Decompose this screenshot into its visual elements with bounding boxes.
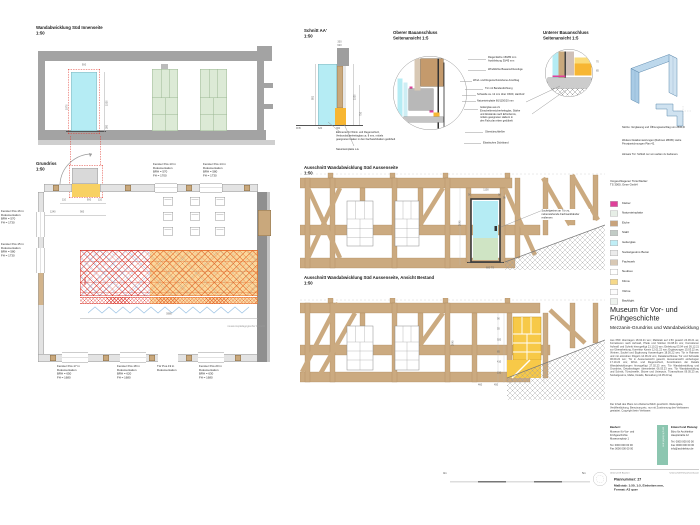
- dim-label: 380: [106, 125, 109, 129]
- legend-label: Fachwerk: [622, 261, 635, 264]
- dim-label: 1530: [354, 94, 357, 100]
- legend-swatch-neubau: [610, 269, 618, 275]
- scalebar-segment: [450, 481, 478, 483]
- dim-label: 90: [498, 194, 501, 197]
- dim-line: [104, 72, 105, 132]
- callout-leader: [464, 109, 478, 110]
- door-frame-3d-sketch: [630, 53, 689, 106]
- detail-eiche-riegel: [421, 59, 444, 87]
- callout-leader: [462, 95, 476, 96]
- legend-swatch-sockel: [610, 250, 618, 256]
- dim-label: 600 TS: [475, 267, 505, 270]
- legend-swatch-eiche: [610, 221, 618, 227]
- detail-circle-oben: [393, 56, 467, 130]
- detail-steel: [409, 89, 434, 111]
- note-glass: Elemente für Wind- und Regenschutz, Verb…: [336, 131, 426, 141]
- architect-address: Büro für Architektur Hauptstraße 12 Tel.…: [671, 431, 700, 451]
- plan-subtitle: Mezzanin-Grundriss und Wandabwicklung: [610, 325, 699, 331]
- klima-overlay: [150, 297, 258, 304]
- dim-line: [359, 85, 360, 125]
- lattice-window: [395, 201, 419, 246]
- callout-leader: [464, 144, 481, 145]
- callout-dichtband: Elastisches Dichtband: [483, 142, 509, 145]
- view-scale-schnitt: 1:50: [304, 34, 313, 39]
- copyright-note: Der Inhalt des Plans ist urheberrechtlic…: [610, 403, 699, 413]
- detail-klima: [575, 64, 592, 76]
- dim-label: 2045: [459, 220, 462, 226]
- client-address: Museum für Vor- und Frühgeschichte Museu…: [610, 431, 654, 451]
- note-tuer: Hinweis Tür: Schloß nur von außen zu bed…: [622, 153, 698, 156]
- scalebar-segment: [478, 481, 506, 483]
- klima-overlay: [150, 250, 258, 296]
- wall-tab: [264, 83, 273, 88]
- chair: [190, 197, 200, 206]
- callout-leader-lines: [520, 84, 570, 119]
- annotation-fenster-15: Fenster Pos.15 in Dokumentation BRH = 58…: [1, 243, 24, 258]
- scalebar-min-label: 0m: [443, 472, 447, 475]
- window-14-plan: [200, 183, 222, 193]
- legend-label: Neubau: [622, 270, 633, 273]
- dim-label: 1240: [50, 211, 56, 214]
- legend-label: Sockelgesims Beton: [622, 251, 649, 254]
- legend-label: Isolierglas: [622, 241, 636, 244]
- legend-label: Natursteinplatte: [622, 212, 643, 215]
- dim-label: 900: [80, 211, 84, 214]
- format-note: Maßstab: 1:50, 1:5, Einheiten mm, Format…: [614, 484, 699, 492]
- callout-tuerschliesser: Obentürschließer: [485, 131, 505, 134]
- door-19-opening: [158, 353, 178, 363]
- section-wall-above: [337, 48, 349, 66]
- timber-post-plan: [125, 185, 131, 191]
- dim-label: 5980: [80, 313, 258, 316]
- signature-right: Unterschrift Entwurfsverfasser: [658, 472, 699, 475]
- dim-line: [80, 318, 258, 319]
- lattice-window: [347, 201, 373, 246]
- legend-swatch-isolierglas: [610, 240, 618, 246]
- dim-label: 90: [497, 318, 500, 321]
- titleblock-divider: [610, 469, 699, 470]
- plan-wall: [222, 184, 258, 192]
- vitrine-label: Vitrine: [84, 277, 87, 285]
- chair: [215, 212, 225, 221]
- timber-post-plan: [186, 185, 192, 191]
- dim-line: [44, 215, 106, 216]
- view-title-wand-innen: Wandabwicklung Süd Innenseite: [36, 25, 103, 30]
- window-16-plan: [36, 212, 45, 237]
- view-scale-aussen-bestand: 1:50: [304, 281, 313, 286]
- annotation-tuer-19: Tür Pos.19 in Dokumentation: [157, 365, 177, 373]
- annotation-fenster-17: Fenster Pos.17 in Dokumentation BRH = 65…: [57, 365, 80, 380]
- door-sill-line: [66, 131, 106, 132]
- callout-riegel: Riegel Eiche 150/80 mm Ausklinkung 30/45…: [488, 56, 516, 63]
- existing-door-elevation: [200, 69, 227, 131]
- detail-frame: [566, 52, 574, 76]
- window-17-plan: [62, 352, 88, 363]
- timber-post-plan: [149, 355, 155, 361]
- dim-label: 900: [78, 199, 100, 202]
- legend-swatch-naturstein: [610, 211, 618, 217]
- legend-swatch-fachwerk: [610, 260, 618, 266]
- dim-label: 900: [68, 64, 100, 67]
- callout-isolierglas: Isolierglas aus 2x Einscheibensicherheit…: [480, 106, 520, 123]
- window-18-plan: [120, 352, 146, 363]
- scalebar-segment: [506, 481, 534, 483]
- legend-label: Vitrine: [622, 290, 630, 293]
- project-title: Museum für Vor- und Frühgeschichte: [610, 306, 699, 323]
- view-scale-wand-innen: 1:50: [36, 31, 45, 36]
- legend-swatch-backlight: [610, 299, 618, 305]
- dim-label: 110: [62, 199, 66, 202]
- approval-stamp: [593, 472, 607, 486]
- dim-label: 920: [497, 339, 501, 342]
- paedagogik-note: museumspädagogischer Bereich: [170, 325, 265, 328]
- wall-elevation-left: [38, 51, 45, 140]
- window-13-plan: [155, 183, 177, 193]
- scalebar-segment: [534, 481, 562, 483]
- wall-elevation-head: [257, 46, 272, 61]
- detail-glass: [404, 83, 408, 117]
- timber-post-plan: [244, 185, 250, 191]
- scalebar-max-label: 5m: [582, 472, 586, 475]
- legend-label: Kleber: [622, 202, 631, 205]
- view-title-aussen-bestand: Ausschnitt Wandabwicklung Süd Aussenseit…: [304, 275, 434, 280]
- timber-post-plan: [50, 355, 56, 361]
- chair: [163, 227, 173, 236]
- callout-regenschutz: Wind- und Regenschutzebene Anschlag: [473, 79, 519, 82]
- door-mullion: [165, 98, 166, 131]
- dim-line: [315, 64, 316, 125]
- dim-line: [60, 203, 106, 204]
- wall-elevation-right: [257, 61, 264, 131]
- architect-logo: architekten: [657, 425, 668, 465]
- dim-label: 410: [497, 361, 501, 364]
- scalebar: [450, 481, 590, 483]
- chair: [163, 197, 173, 206]
- note-skizze: Skizze: Verglasung und Öffnungsanschlag …: [622, 126, 698, 129]
- annotation-fenster-14: Fenster Pos.14 in Dokumentation BRH = 58…: [203, 163, 226, 178]
- legend-label: Klima: [622, 280, 630, 283]
- view-subtitle-detail-unten: Seitenansicht 1:5: [543, 36, 578, 41]
- dim-label: 1100: [476, 189, 496, 192]
- legend-swatch-vitrine: [610, 289, 618, 295]
- callout-leader: [465, 89, 483, 90]
- legend-label: Backlight: [622, 300, 634, 303]
- door-mullion: [209, 70, 210, 98]
- new-door-highlight-outline: [68, 69, 100, 134]
- dim-label: 110: [98, 199, 102, 202]
- detail-glass-line: [444, 63, 445, 129]
- door-mullion: [161, 70, 162, 98]
- annotation-fenster-20: Fenster Pos.20 in Dokumentation BRH = 63…: [199, 365, 222, 380]
- callout-leader: [460, 81, 472, 82]
- view-scale-grundriss: 1:50: [36, 167, 45, 172]
- section-liner: [343, 66, 346, 108]
- door-mullion: [218, 70, 219, 98]
- dim-label: 70: [596, 61, 599, 64]
- annotation-fenster-16: Fenster Pos.16 in Dokumentation BRH = 57…: [1, 210, 24, 225]
- client-label: Bauherr:: [610, 426, 621, 429]
- legend-header: Vorgeschlagener Türschließer: TS 3000, G…: [610, 180, 698, 187]
- dim-label: 460: [478, 384, 482, 387]
- timber-post-plan: [235, 355, 241, 361]
- scalebar-segment: [562, 481, 590, 483]
- projection-line: [100, 136, 101, 165]
- dim-label: 450: [494, 384, 498, 387]
- door-opening-klima: [72, 184, 100, 197]
- timber-post-plan: [186, 355, 192, 361]
- dim-label: 85: [596, 70, 599, 73]
- note-stone: Natursteinplatte o.ä.: [336, 148, 401, 151]
- view-subtitle-detail-oben: Seitenansicht 1:5: [393, 36, 428, 41]
- dim-label: 150: [497, 372, 501, 375]
- legend-swatch-klima: [610, 279, 618, 285]
- revision-history: Aus PDF übertragen 18.04.21 wm; Maßstab …: [610, 339, 699, 377]
- door-mullion: [169, 70, 170, 98]
- legend-label: Stahl: [622, 231, 629, 234]
- dim-label: 620: [332, 45, 347, 48]
- dim-label: 55: [497, 328, 500, 331]
- callout-leader: [465, 133, 483, 134]
- callout-sockelgesims: Sockelgesims an Tür zu, nebenstehende Fa…: [541, 209, 590, 220]
- dim-label: 750: [360, 112, 363, 116]
- signature-left: Unterschrift Bauherr: [610, 472, 630, 475]
- callout-tuer: Tür mit Bandendichtung: [485, 87, 513, 90]
- detail-kleber: [410, 87, 413, 89]
- logo-text: architekten: [662, 427, 665, 447]
- wall-tab: [264, 104, 273, 109]
- existing-door-elevation: [152, 69, 178, 131]
- legend-swatch-stahl: [610, 230, 618, 236]
- lattice-window: [347, 326, 373, 370]
- plan-number: Plannummer: 27: [614, 478, 641, 482]
- window-15-plan: [36, 248, 45, 273]
- dim-label: 90: [503, 197, 506, 200]
- chair: [163, 212, 173, 221]
- door-mullion: [214, 98, 215, 131]
- annotation-fenster-18: Fenster Pos.18 in Dokumentation BRH = 62…: [117, 365, 140, 380]
- note-details: Weitere Detailumsetzungen (Rahmen 2BOB):…: [622, 139, 698, 146]
- window-20-plan: [198, 352, 224, 363]
- detail-stone-plate: [404, 117, 444, 123]
- architect-label: Entwurf und Planung:: [671, 426, 700, 429]
- lattice-window: [395, 326, 419, 370]
- timber-post-plan: [53, 185, 59, 191]
- callout-fuge: Winddichte Bauanschlussfuge: [488, 68, 523, 71]
- timber-post-plan: [103, 355, 109, 361]
- callout-leader: [468, 70, 486, 71]
- chair: [190, 227, 200, 236]
- chair: [190, 212, 200, 221]
- dim-label: 1970: [66, 104, 69, 110]
- chair: [215, 227, 225, 236]
- callout-leader: [462, 102, 476, 103]
- dim-label: 85: [497, 351, 500, 354]
- callout-leader: [468, 59, 486, 60]
- ffb-label: FFB: [296, 128, 301, 131]
- detail-glass: [398, 79, 403, 121]
- dim-label: 881: [312, 96, 315, 100]
- legend-label: Eiche: [622, 222, 630, 225]
- callout-schwelle: Schwelle ca. 12 mm über OKFF, Hartholz: [477, 93, 525, 96]
- dim-label: 90: [468, 194, 471, 197]
- plan-sheet: Wandabwicklung Süd Innenseite 1:50 900 1…: [0, 0, 700, 525]
- timber-element-plan: [258, 210, 271, 236]
- callout-naturstein: Natursteinplatte 60/1150/20 mm: [477, 100, 514, 103]
- legend-swatch-kleber: [610, 201, 618, 207]
- wall-elevation-top-band: [38, 51, 257, 61]
- fachwerk-elevation-bestand: [300, 298, 605, 400]
- wall-elevation-base: [38, 140, 275, 145]
- dim-label: 1530: [106, 100, 109, 106]
- dim-label: 2045: [452, 340, 455, 346]
- chair: [215, 197, 225, 206]
- annotation-fenster-13: Fenster Pos.13 in Dokumentation BRH = 57…: [153, 163, 176, 178]
